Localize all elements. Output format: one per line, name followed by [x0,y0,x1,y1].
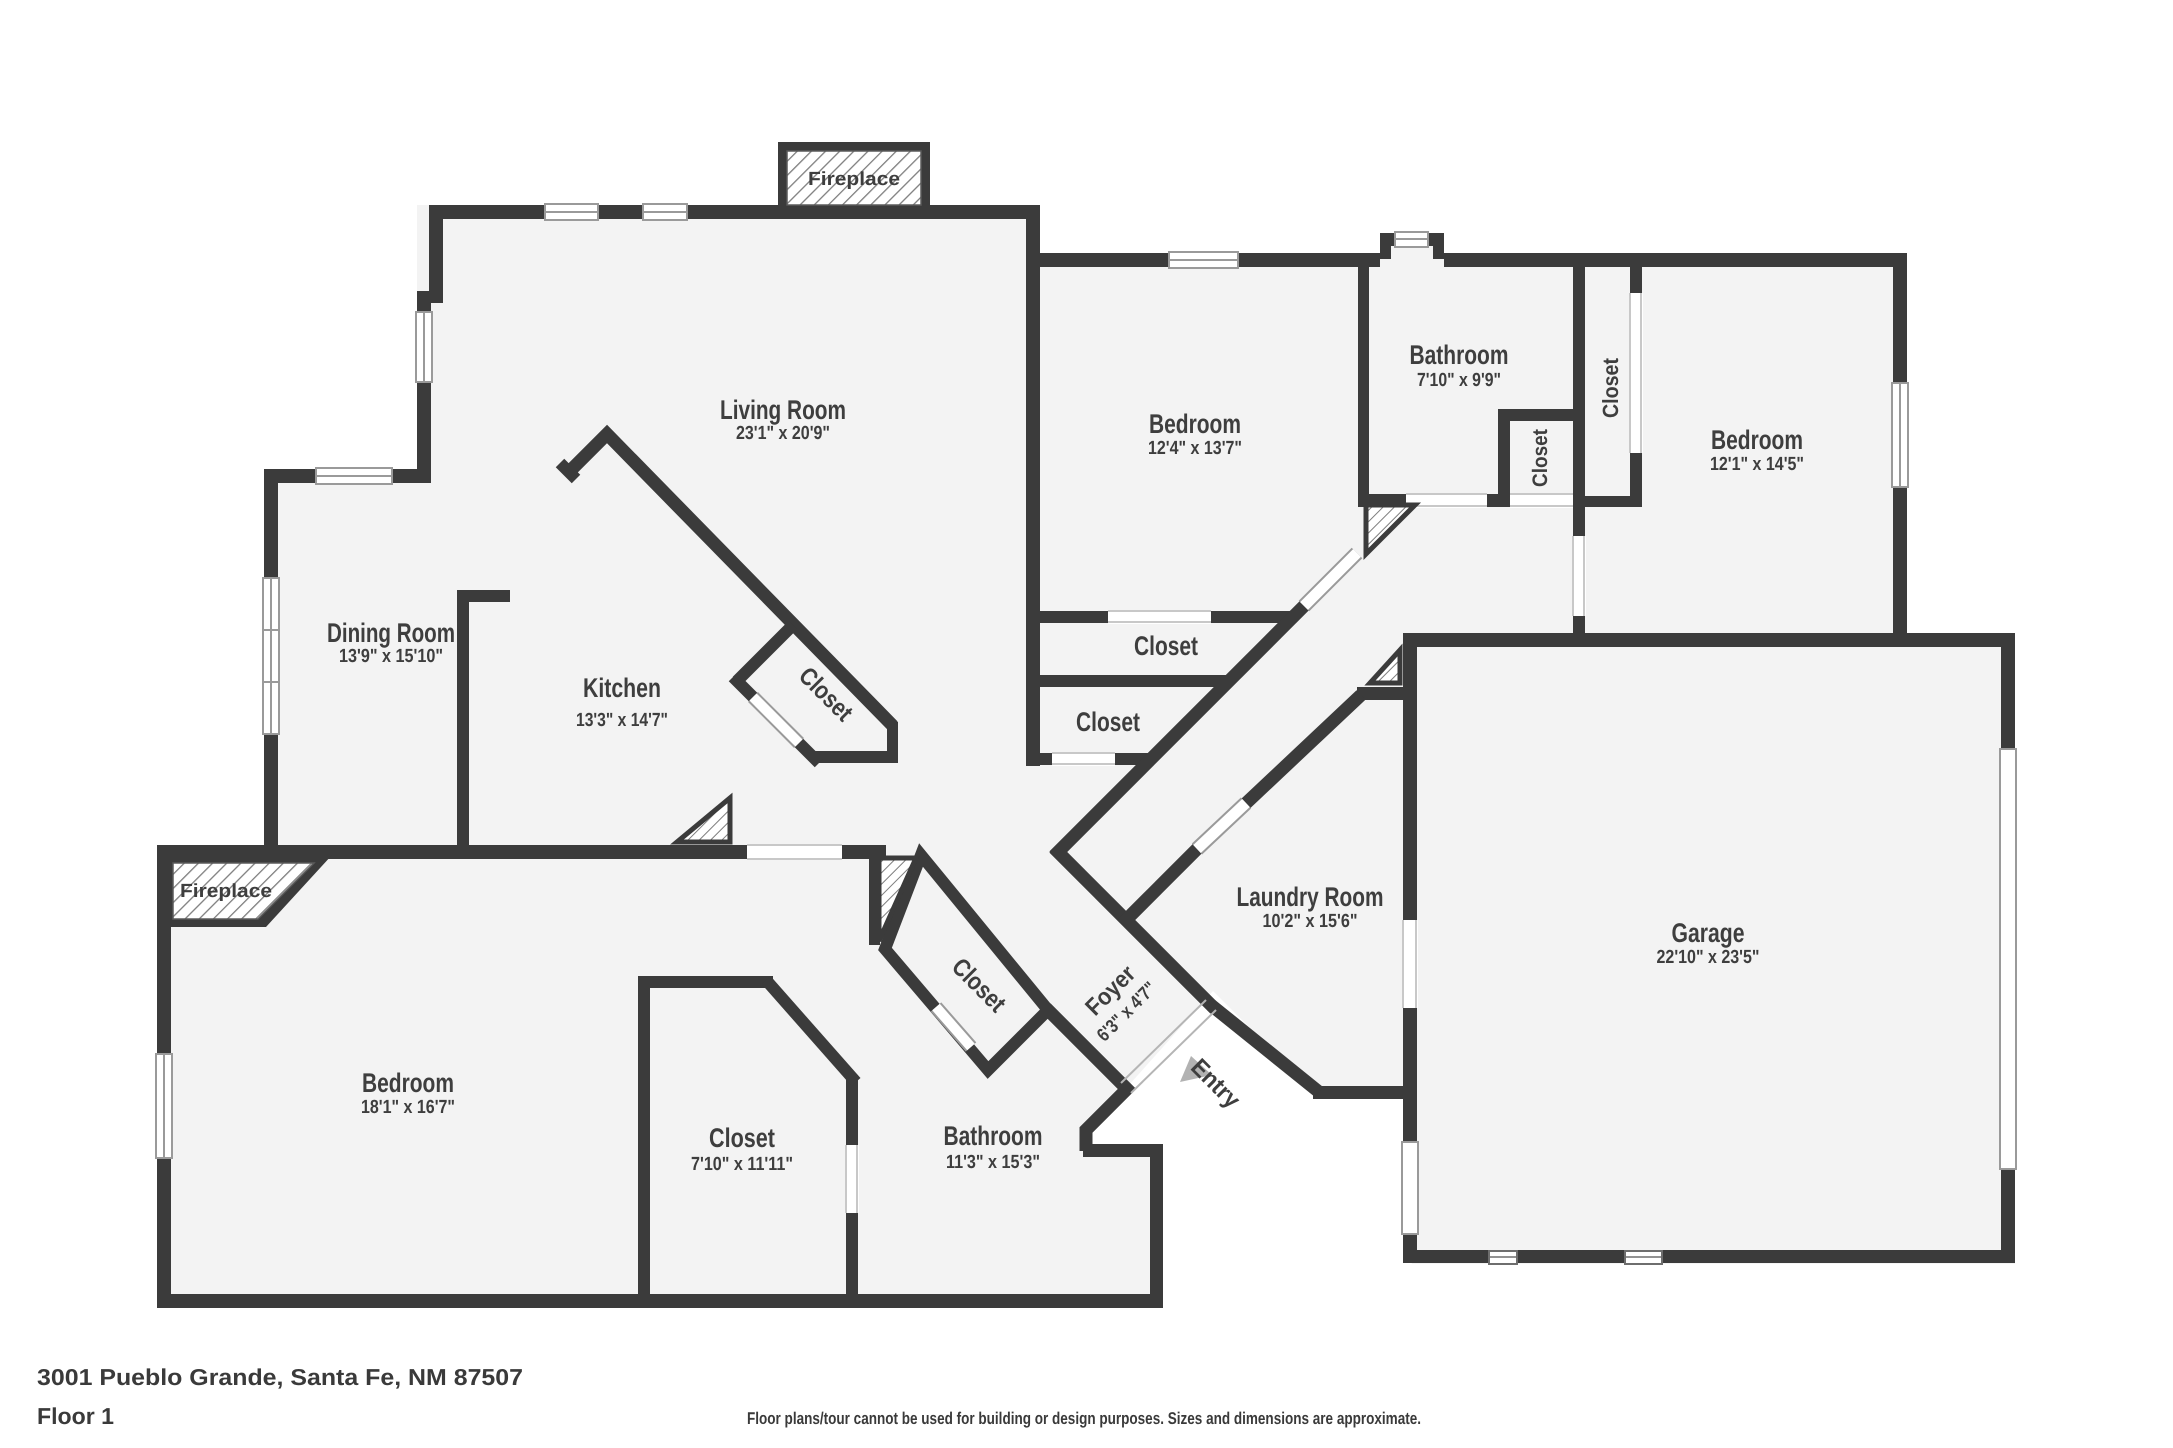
svg-text:Fireplace: Fireplace [808,169,900,190]
svg-text:3001 Pueblo Grande, Santa Fe,: 3001 Pueblo Grande, Santa Fe, NM 87507 [37,1364,523,1390]
svg-text:Bathroom: Bathroom [1410,340,1509,370]
svg-text:Closet: Closet [1134,631,1198,661]
svg-text:Closet: Closet [1598,357,1623,418]
svg-text:12'1" x 14'5": 12'1" x 14'5" [1710,454,1804,475]
svg-text:Floor plans/tour cannot be use: Floor plans/tour cannot be used for buil… [747,1409,1421,1428]
svg-text:13'9" x 15'10": 13'9" x 15'10" [339,646,443,667]
svg-text:Fireplace: Fireplace [180,881,272,902]
svg-text:11'3" x 15'3": 11'3" x 15'3" [946,1152,1040,1173]
svg-text:23'1" x 20'9": 23'1" x 20'9" [736,423,830,444]
svg-text:Closet: Closet [709,1123,775,1153]
svg-text:22'10" x 23'5": 22'10" x 23'5" [1657,947,1760,968]
svg-text:Kitchen: Kitchen [583,673,661,703]
svg-text:13'3" x 14'7": 13'3" x 14'7" [576,710,668,731]
svg-text:18'1" x 16'7": 18'1" x 16'7" [361,1097,455,1118]
svg-text:Garage: Garage [1672,918,1745,948]
svg-text:10'2" x 15'6": 10'2" x 15'6" [1263,911,1358,932]
svg-text:Floor 1: Floor 1 [37,1403,114,1429]
svg-text:Bedroom: Bedroom [1149,409,1241,439]
svg-text:Bedroom: Bedroom [362,1068,454,1098]
svg-text:Dining Room: Dining Room [327,618,455,648]
svg-text:Closet: Closet [1076,707,1140,737]
svg-text:Bedroom: Bedroom [1711,425,1803,455]
svg-text:7'10" x 11'11": 7'10" x 11'11" [691,1154,793,1175]
svg-text:Closet: Closet [1529,429,1552,487]
svg-text:12'4" x 13'7": 12'4" x 13'7" [1148,438,1242,459]
svg-text:Living Room: Living Room [720,395,846,425]
svg-text:Bathroom: Bathroom [944,1121,1043,1151]
svg-text:7'10" x 9'9": 7'10" x 9'9" [1417,370,1501,391]
svg-text:Laundry Room: Laundry Room [1237,882,1384,912]
